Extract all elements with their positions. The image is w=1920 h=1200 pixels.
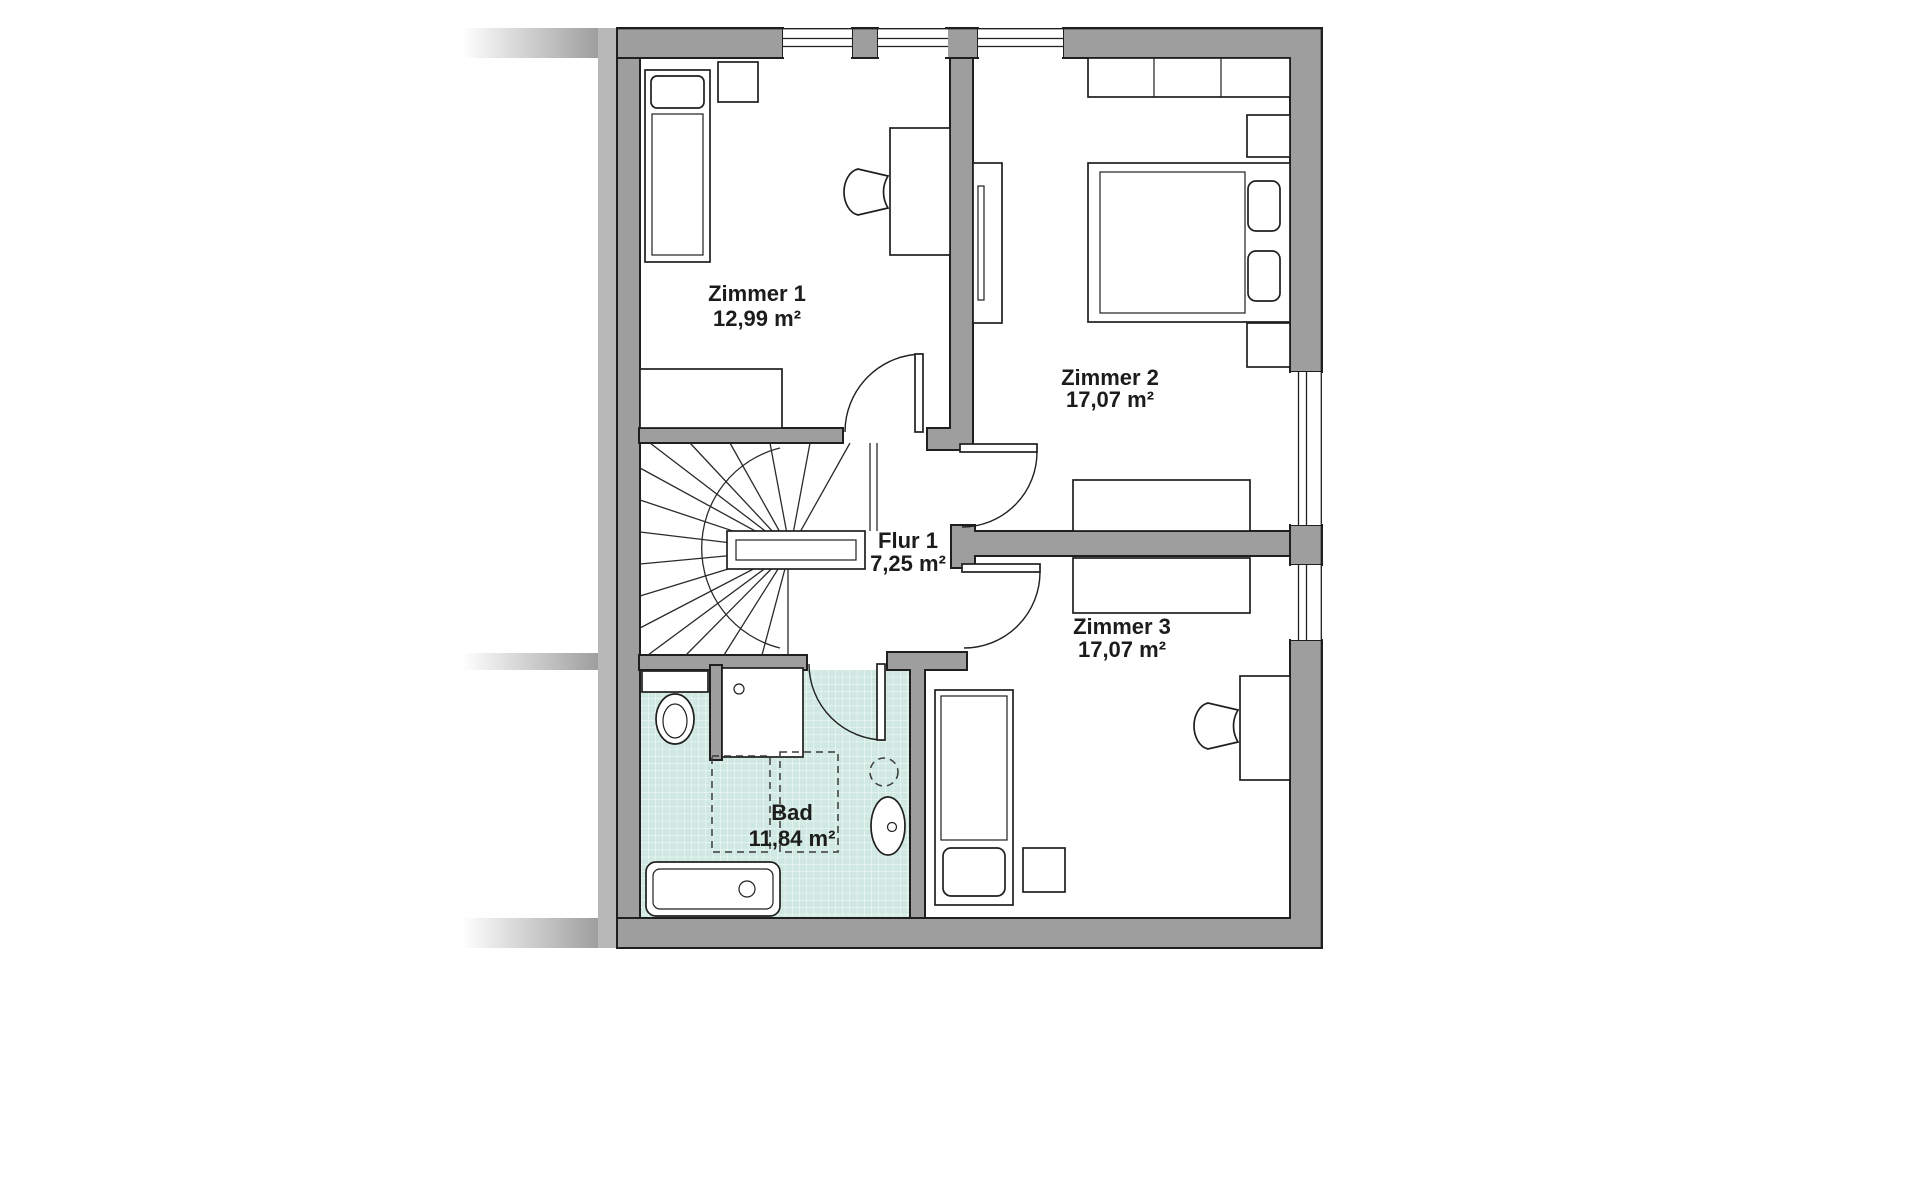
wall-right-junction <box>1290 525 1322 565</box>
door-zimmer3-arc <box>964 572 1040 648</box>
room-label-zimmer3-name: Zimmer 3 <box>1073 614 1171 639</box>
room-label-zimmer3-area: 17,07 m² <box>1078 637 1166 662</box>
wall-top-pier-1 <box>852 28 878 58</box>
room-label-zimmer1-area: 12,99 m² <box>713 306 801 331</box>
bed-pillow <box>651 76 704 108</box>
wall-top-left <box>617 28 783 58</box>
nightstand-upper <box>1247 115 1290 157</box>
room-label-flur1-area: 7,25 m² <box>870 551 946 576</box>
sideboard <box>1073 480 1250 531</box>
wall-shower-stub <box>710 665 722 760</box>
staircase <box>640 443 877 655</box>
desk-chair <box>844 169 888 215</box>
desk <box>890 128 950 255</box>
toilet-cistern <box>642 671 708 692</box>
neighbor-wall-fade-bands <box>462 28 617 948</box>
zimmer2-furniture <box>973 58 1290 531</box>
zimmer1-furniture <box>640 62 950 428</box>
toilet-bowl <box>656 694 694 744</box>
shower-tray <box>722 668 803 757</box>
party-wall-neighbor-half <box>598 28 617 948</box>
room-label-bad-name: Bad <box>771 800 813 825</box>
window-zimmer1-b <box>878 29 948 57</box>
wall-top-pier-2 <box>946 28 978 58</box>
room-label-flur1-name: Flur 1 <box>878 528 938 553</box>
pillow-2 <box>1248 251 1280 301</box>
floor-plan-page: Zimmer 1 12,99 m² Zimmer 2 17,07 m² Flur… <box>0 0 1920 1200</box>
nightstand-lower <box>1247 323 1290 367</box>
door-zimmer1-arc <box>845 354 923 432</box>
wall-zimmer1-stairs <box>639 428 843 443</box>
bathtub <box>646 862 780 916</box>
desk-z3 <box>1240 676 1290 780</box>
wardrobe-z3 <box>1073 558 1250 613</box>
room-label-zimmer1-name: Zimmer 1 <box>708 281 806 306</box>
side-table-z3 <box>1023 848 1065 892</box>
bed-pillow-z3 <box>943 848 1005 896</box>
wall-left-party <box>617 58 640 918</box>
floor-plan: Zimmer 1 12,99 m² Zimmer 2 17,07 m² Flur… <box>0 0 1920 1200</box>
desk-chair-z3 <box>1194 703 1238 749</box>
shelf-unit <box>973 163 1002 323</box>
dresser <box>640 369 782 428</box>
window-zimmer2-top <box>978 29 1063 57</box>
room-label-bad-area: 11,84 m² <box>749 826 836 851</box>
window-zimmer1-a <box>783 29 852 57</box>
door-zimmer3-leaf <box>962 564 1040 572</box>
room-label-zimmer2-area: 17,07 m² <box>1066 387 1154 412</box>
wardrobe <box>1088 58 1290 97</box>
pillow-1 <box>1248 181 1280 231</box>
zimmer3-furniture <box>935 558 1290 905</box>
door-bad-leaf <box>877 664 885 740</box>
door-zimmer2-arc <box>962 452 1037 527</box>
stair-handrail <box>727 531 865 569</box>
nightstand <box>718 62 758 102</box>
door-zimmer1-leaf <box>915 354 923 432</box>
door-zimmer2-leaf <box>960 444 1037 452</box>
